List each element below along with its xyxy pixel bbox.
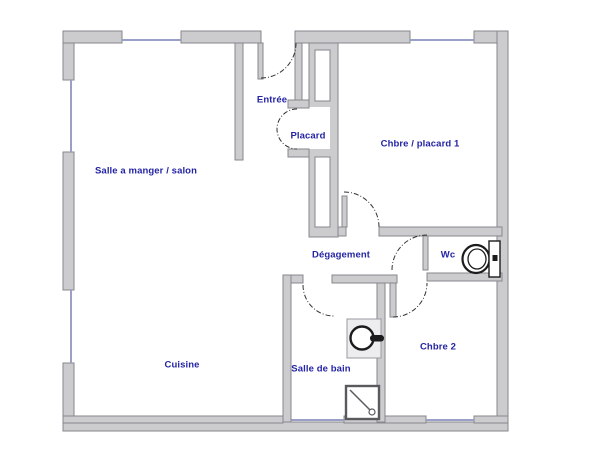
room-label-degagement: Dégagement	[312, 250, 370, 261]
placard-door-arc	[277, 109, 297, 149]
wall-salon-entree	[235, 43, 243, 160]
toilet-icon	[463, 241, 501, 277]
wall-top-3	[295, 31, 410, 43]
room-label-placard: Placard	[290, 131, 325, 142]
entrance-door-arc	[261, 43, 296, 78]
wall-left-mid	[63, 152, 74, 290]
wall-bottom-inner-1	[63, 416, 283, 423]
room-label-cuisine: Cuisine	[164, 360, 199, 371]
room-label-chambre2: Chbre 2	[420, 342, 456, 353]
chambre1-door-leaf	[342, 196, 347, 227]
wall-degagement-b	[332, 275, 397, 283]
wall-entree-strip	[295, 43, 302, 106]
chambre1-door-arc	[344, 192, 379, 227]
wall-bottom-inner-3	[474, 416, 508, 423]
sdb-door-arc	[303, 285, 334, 316]
floor-plan-drawing	[0, 0, 600, 453]
room-label-salle-de-bain: Salle de bain	[291, 364, 350, 375]
placard-compartment-bottom	[315, 157, 330, 227]
wc-door-leaf	[423, 236, 428, 270]
chambre2-door-leaf	[390, 283, 396, 317]
floor-plan: Salle a manger / salon Entrée Placard Ch…	[0, 0, 600, 453]
shower-icon	[346, 386, 379, 419]
entrance-door-leaf	[258, 43, 263, 79]
room-label-chambre1: Chbre / placard 1	[381, 139, 460, 150]
wc-door-arc	[392, 235, 427, 270]
washbasin-icon	[347, 319, 384, 358]
chambre2-door-arc	[393, 283, 427, 317]
wall-top-1	[63, 31, 122, 43]
room-label-wc: Wc	[441, 250, 455, 261]
placard-opening	[296, 107, 330, 149]
placard-stub-top	[288, 100, 309, 108]
placard-stub-bottom	[288, 149, 309, 157]
wall-cuisine-bain	[283, 275, 291, 422]
placard-compartment-top	[315, 50, 330, 101]
room-label-salon: Salle a manger / salon	[95, 166, 197, 177]
wall-top-2	[181, 31, 261, 43]
wall-chambre1-bottom	[379, 227, 502, 236]
room-label-entree: Entrée	[257, 95, 287, 106]
wall-chambre1-door-jamb	[338, 227, 346, 236]
